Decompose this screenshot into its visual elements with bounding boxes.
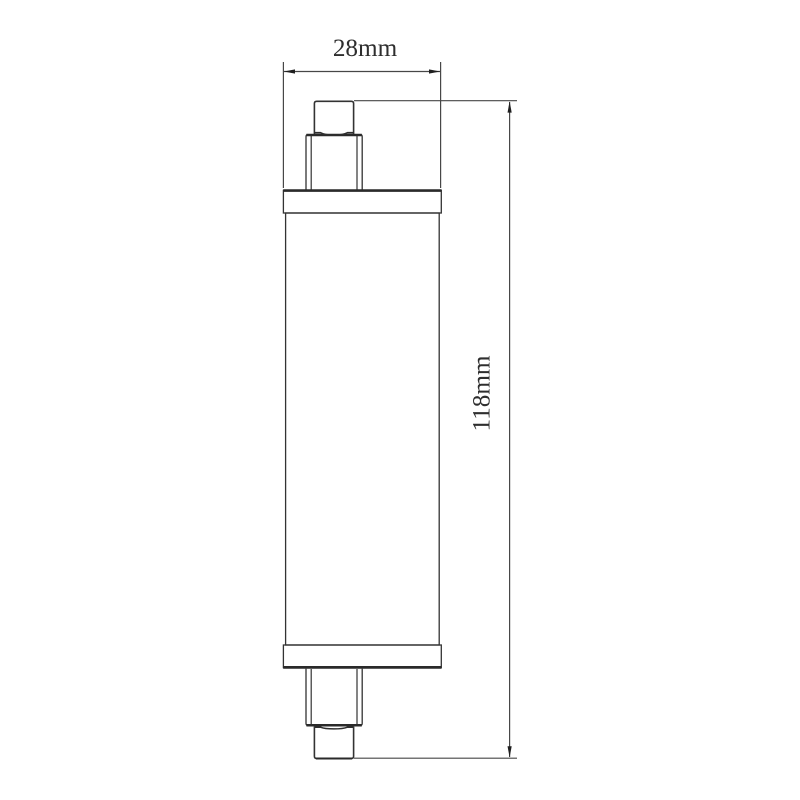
svg-text:28mm: 28mm (333, 35, 398, 62)
svg-text:118mm: 118mm (468, 355, 495, 431)
